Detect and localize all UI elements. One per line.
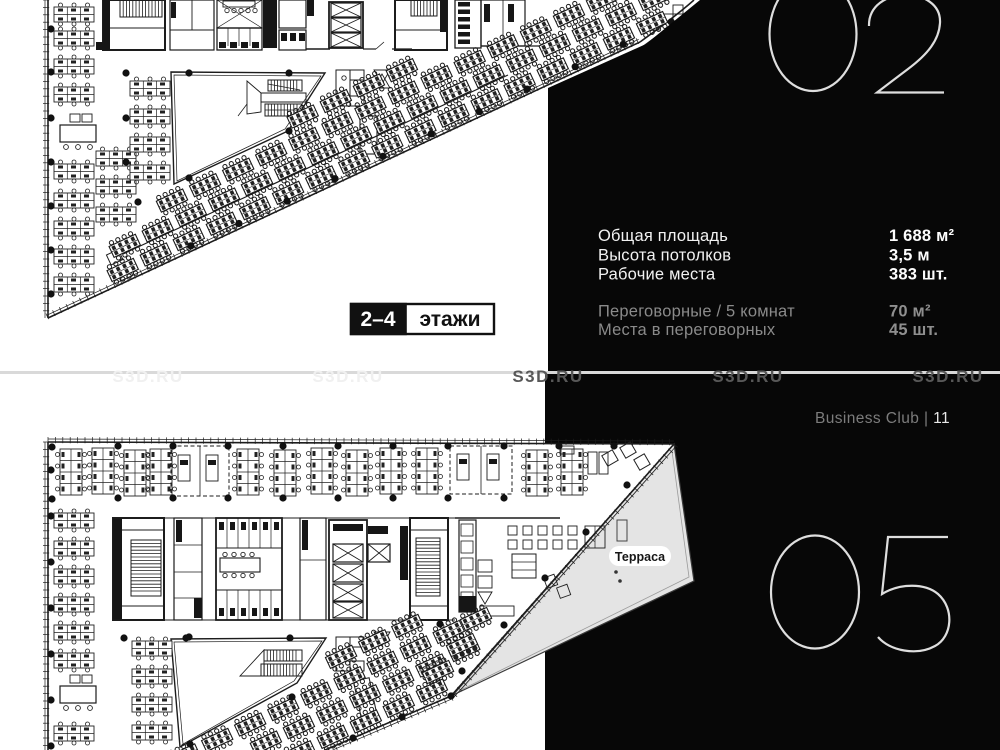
svg-text:Общая площадь: Общая площадь bbox=[598, 227, 728, 245]
svg-text:45 шт.: 45 шт. bbox=[889, 321, 938, 339]
svg-text:383 шт.: 383 шт. bbox=[889, 266, 947, 284]
svg-text:S3D.RU: S3D.RU bbox=[112, 367, 183, 386]
svg-text:Переговорные / 5 комнат: Переговорные / 5 комнат bbox=[598, 303, 795, 321]
svg-text:Рабочие места: Рабочие места bbox=[598, 266, 716, 284]
svg-text:Места в переговорных: Места в переговорных bbox=[598, 321, 776, 339]
svg-text:S3D.RU: S3D.RU bbox=[512, 367, 583, 386]
svg-text:S3D.RU: S3D.RU bbox=[912, 367, 983, 386]
svg-text:Высота потолков: Высота потолков bbox=[598, 246, 731, 264]
svg-text:этажи: этажи bbox=[419, 308, 480, 331]
svg-text:Business Club | 11: Business Club | 11 bbox=[815, 410, 950, 427]
svg-text:70 м²: 70 м² bbox=[889, 303, 931, 321]
svg-text:S3D.RU: S3D.RU bbox=[312, 367, 383, 386]
svg-text:Терраса: Терраса bbox=[615, 550, 666, 564]
svg-text:1 688 м²: 1 688 м² bbox=[889, 227, 954, 245]
svg-text:3,5 м: 3,5 м bbox=[889, 246, 930, 264]
svg-text:S3D.RU: S3D.RU bbox=[712, 367, 783, 386]
svg-text:2–4: 2–4 bbox=[360, 308, 395, 331]
